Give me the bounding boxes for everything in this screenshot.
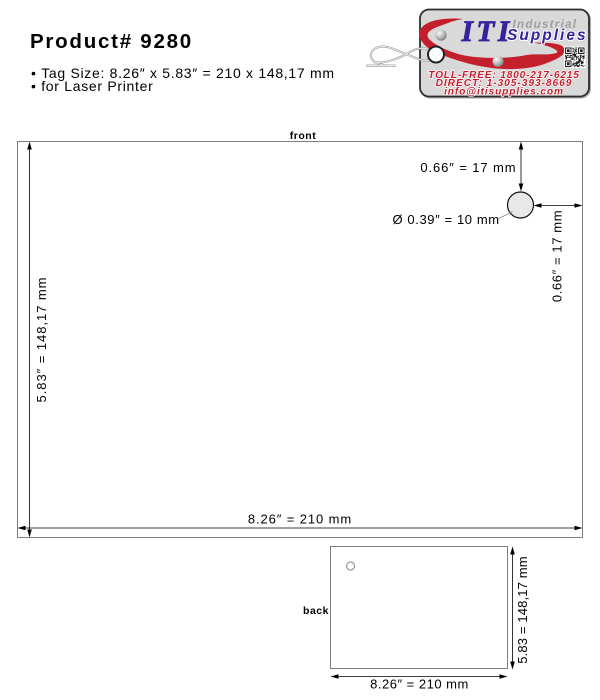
- svg-text:8.26″ = 210 mm: 8.26″ = 210 mm: [370, 677, 469, 692]
- svg-text:0.66″ = 17 mm: 0.66″ = 17 mm: [420, 160, 516, 175]
- svg-text:front: front: [290, 130, 316, 142]
- svg-text:5.83 = 148,17 mm: 5.83 = 148,17 mm: [515, 556, 530, 664]
- svg-text:0.66″ = 17 mm: 0.66″ = 17 mm: [550, 210, 565, 302]
- svg-text:8.26″ = 210 mm: 8.26″ = 210 mm: [248, 512, 352, 527]
- svg-text:5.83″ = 148,17 mm: 5.83″ = 148,17 mm: [34, 277, 49, 403]
- svg-text:Ø 0.39″ = 10 mm: Ø 0.39″ = 10 mm: [393, 212, 500, 227]
- svg-text:back: back: [303, 605, 329, 617]
